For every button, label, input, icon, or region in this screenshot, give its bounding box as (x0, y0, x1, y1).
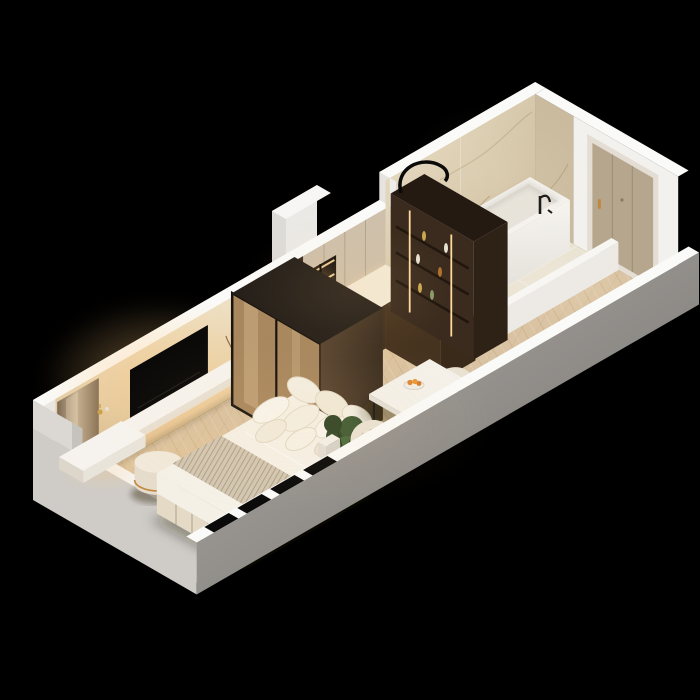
scene-warm-sheen (100, 330, 500, 510)
gold-door-handle (598, 199, 601, 209)
kitchen-warm-sheen (240, 220, 460, 360)
door-peephole (620, 198, 623, 201)
render-canvas (0, 0, 700, 700)
light-overlays (100, 220, 500, 510)
bottle (444, 243, 448, 253)
pantry-side-face (474, 222, 508, 360)
apartment-render (0, 0, 700, 700)
